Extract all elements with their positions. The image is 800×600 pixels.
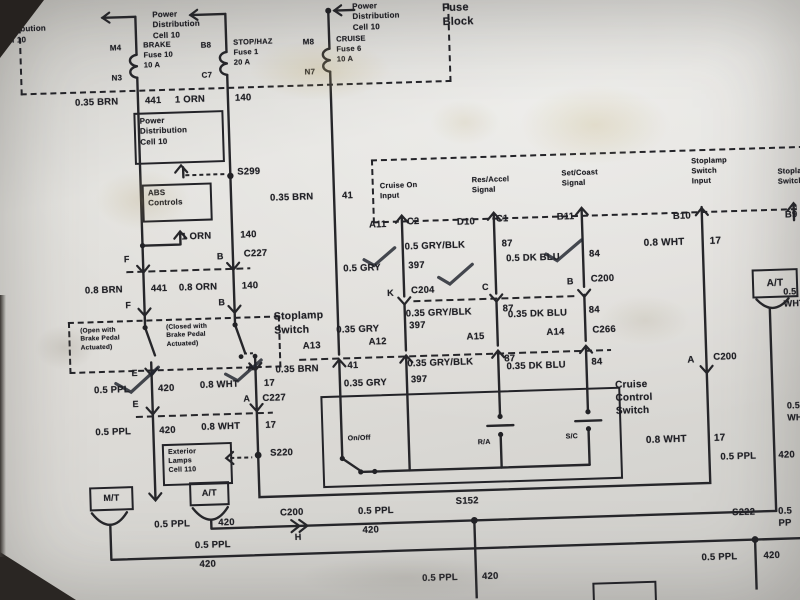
wire-ppl-w1a: 0.5 PPL (154, 518, 190, 531)
pin-n7: N7 (291, 67, 315, 78)
cir-420-s152: 420 (482, 571, 499, 584)
wire-ppl-at: 0.5 PPL (720, 451, 756, 464)
wire-orn-1b: 1 ORN (181, 231, 211, 244)
wire-brn-035-41b: 0.35 BRN (275, 363, 319, 377)
wire-gryblk-035a: 0.35 GRY/BLK (406, 306, 472, 320)
photo-of-wiring-diagram: Power Distribution Cell 10 ABS Controls … (0, 0, 800, 600)
pin-a3: A (687, 354, 694, 367)
wire-ppl-05a: 0.5 PPL (94, 384, 130, 397)
pin-b9-cut: B9 (785, 209, 798, 222)
wire-dkblu-05: 0.5 DK BLU (506, 252, 560, 266)
conn-c200-b: C200 (713, 351, 737, 364)
pin-c: C (482, 282, 489, 294)
sw-ra: R/A (478, 438, 491, 447)
input-stoplamp-cut: Stoplamp Switch (777, 166, 800, 187)
cir-420-b: 420 (159, 425, 176, 438)
input-cruise-on: Cruise On Input (380, 180, 418, 201)
splice-s220: S220 (270, 447, 293, 460)
input-set-coast: Set/Coast Signal (561, 167, 598, 188)
note-closed: (Closed with Brake Pedal Actuated) (166, 323, 208, 350)
pin-d10: D10 (457, 216, 475, 229)
pin-f1: F (124, 254, 130, 266)
wire-gry-035b: 0.35 GRY (344, 377, 387, 391)
pin-a12: A12 (368, 336, 386, 349)
pin-b3: B (567, 276, 574, 288)
cir-420-w2: 420 (199, 559, 216, 572)
cir-140-a: 140 (235, 92, 252, 105)
wire-gry-05: 0.5 GRY (343, 262, 381, 276)
wire-brn-035-41a: 0.35 BRN (270, 191, 314, 205)
diagram-ink-layer: Power Distribution Cell 10 ABS Controls … (0, 0, 800, 600)
ref-power-dist-3: Power Distribution Cell 10 (352, 0, 400, 33)
sw-onoff: On/Off (348, 434, 371, 444)
cir-84-b: 84 (589, 304, 600, 317)
pin-b2: B (218, 297, 225, 309)
conn-c266: C266 (592, 324, 616, 337)
cir-17-c: 17 (709, 235, 721, 248)
wire-wht-08d: 0.8 WHT (646, 433, 687, 447)
input-stoplamp: Stoplamp Switch Input (691, 155, 728, 185)
wiring-lines (0, 0, 800, 600)
wire-ppl-s222: 0.5 PPL (701, 551, 737, 564)
cir-84-c: 84 (591, 356, 602, 369)
wire-ppl-cut: 0.5 PP (778, 505, 800, 531)
cir-420-at: 420 (778, 449, 795, 462)
cir-87-a: 87 (501, 238, 512, 251)
wire-gryblk-05: 0.5 GRY/BLK (405, 240, 466, 254)
cir-41-b: 41 (347, 360, 358, 373)
cir-140-c: 140 (242, 280, 259, 293)
fuse-block-title: Fuse Block (442, 0, 474, 30)
ref-power-dist-2: Power Distribution Cell 10 (152, 9, 200, 42)
pin-c1: C1 (496, 213, 509, 226)
wire-brn-08: 0.8 BRN (85, 284, 123, 298)
note-open: (Open with Brake Pedal Actuated) (80, 326, 120, 353)
fuse-brake: BRAKE Fuse 10 10 A (143, 40, 173, 70)
fuse-stophaz: STOP/HAZ Fuse 1 20 A (233, 36, 273, 66)
conn-c227-a: C227 (244, 248, 268, 261)
pin-a13: A13 (303, 340, 321, 353)
wire-wht-cut-a: 0.5 WHT (783, 286, 800, 310)
pin-b10: B10 (673, 210, 691, 223)
pin-n3: N3 (98, 73, 122, 84)
wire-orn-08: 0.8 ORN (179, 281, 218, 295)
pin-m4: M4 (97, 43, 121, 54)
wire-brn-035-441: 0.35 BRN (75, 96, 119, 110)
pin-b11: B11 (557, 211, 575, 224)
pin-a14: A14 (546, 326, 564, 339)
wire-orn-1a: 1 ORN (175, 94, 205, 107)
stoplamp-switch-title: Stoplamp Switch (274, 309, 324, 338)
input-res-accel: Res/Accel Signal (471, 174, 509, 195)
conn-c200-h: C200 (280, 507, 304, 520)
pin-c7: C7 (188, 70, 212, 81)
cir-17-b: 17 (265, 420, 276, 433)
pin-h: H (295, 532, 302, 544)
pin-a1: A (247, 362, 254, 374)
fuse-cruise: CRUISE Fuse 6 10 A (336, 34, 366, 64)
cir-420-w1a: 420 (218, 517, 235, 530)
pin-e1: E (131, 368, 138, 380)
pin-a2: A (243, 393, 250, 405)
conn-c200-a: C200 (591, 273, 615, 286)
wire-wht-cut-b: 0.5 WHT (787, 400, 800, 424)
splice-s222: S222 (732, 507, 755, 520)
wire-gry-035a: 0.35 GRY (336, 323, 379, 337)
pin-k: K (387, 288, 394, 300)
cir-84-a: 84 (589, 248, 600, 261)
cir-397-c: 397 (411, 374, 428, 387)
pin-m8: M8 (290, 37, 314, 48)
cir-41-a: 41 (342, 190, 353, 203)
pin-e2: E (132, 399, 139, 411)
wire-wht-08c: 0.8 WHT (644, 236, 685, 250)
cir-397-a: 397 (408, 260, 425, 273)
cir-420-a: 420 (158, 383, 175, 396)
pin-a11: A11 (369, 219, 387, 232)
cir-17-a: 17 (264, 378, 275, 391)
pin-a15: A15 (466, 331, 484, 344)
cruise-switch-title: Cruise Control Switch (615, 378, 653, 418)
wire-wht-08b: 0.8 WHT (201, 421, 240, 435)
cir-140-b: 140 (240, 229, 257, 242)
cir-441-a: 441 (145, 95, 162, 108)
wire-ppl-05b: 0.5 PPL (95, 426, 131, 439)
wire-ppl-w2: 0.5 PPL (195, 539, 231, 552)
wire-wht-08a: 0.8 WHT (200, 379, 239, 393)
wire-dkblu-035b: 0.35 DK BLU (506, 359, 566, 373)
pin-c2: C2 (407, 216, 420, 229)
splice-s152: S152 (456, 495, 479, 508)
sw-sc: S/C (566, 432, 579, 441)
wire-dkblu-035a: 0.35 DK BLU (508, 307, 568, 321)
ref-power-dist-1: Power Distribution Cell 10 (0, 14, 46, 47)
conn-c227-b: C227 (262, 392, 286, 405)
conn-c204: C204 (411, 285, 435, 298)
splice-s299: S299 (237, 166, 260, 179)
wire-ppl-w1b: 0.5 PPL (358, 505, 394, 518)
pin-b8: B8 (187, 40, 211, 51)
cir-420-w1b: 420 (362, 524, 379, 537)
pin-f2: F (125, 300, 131, 312)
cir-441-b: 441 (151, 283, 168, 296)
wire-ppl-s152: 0.5 PPL (422, 572, 458, 585)
wire-gryblk-035b: 0.35 GRY/BLK (407, 356, 473, 370)
pin-b1: B (217, 251, 224, 263)
cir-397-b: 397 (409, 320, 426, 333)
cir-420-s222: 420 (763, 550, 780, 563)
cir-17-d: 17 (714, 431, 726, 444)
